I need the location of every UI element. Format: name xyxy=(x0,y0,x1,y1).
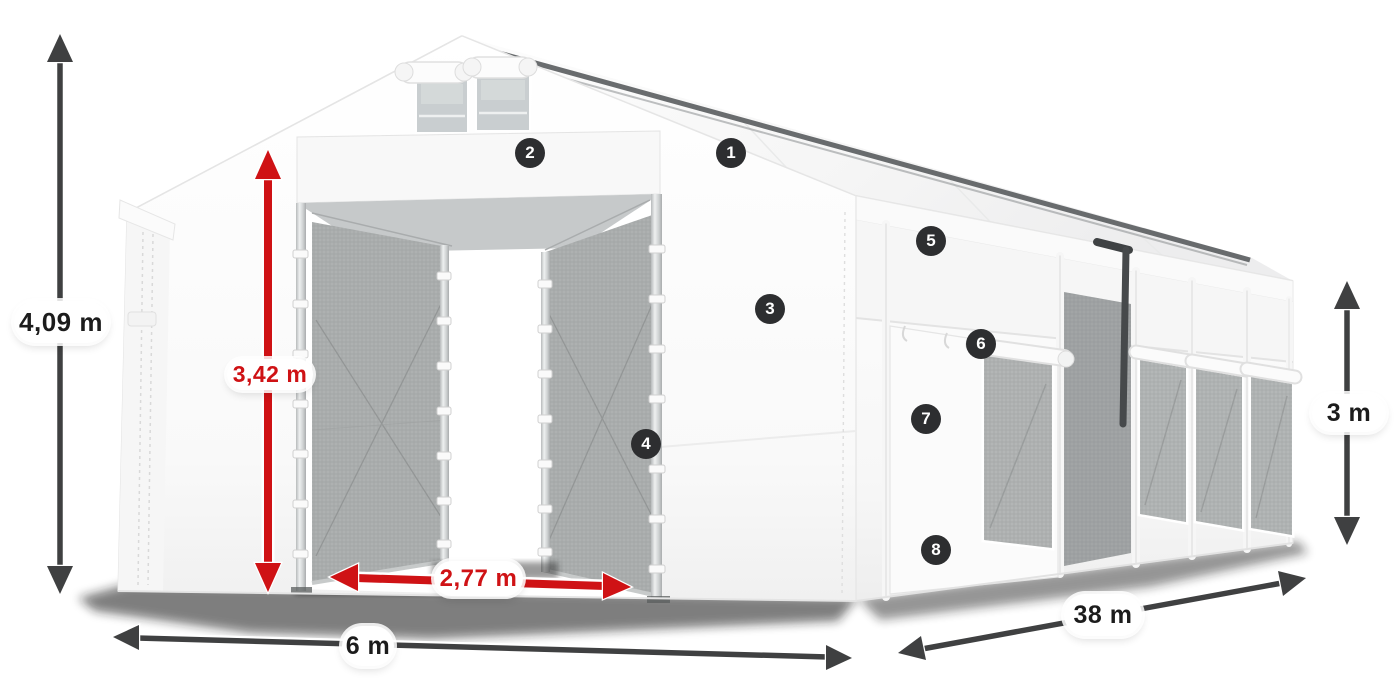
side-windows xyxy=(1136,352,1295,535)
dimension-label-length: 38 m xyxy=(1064,594,1142,636)
feature-badge-3: 3 xyxy=(755,294,785,324)
gable-vents xyxy=(395,57,537,132)
front-entrance-opening xyxy=(291,194,670,603)
dimension-label-width: 6 m xyxy=(342,626,394,666)
feature-badge-1: 1 xyxy=(716,138,746,168)
feature-badge-5: 5 xyxy=(916,226,946,256)
feature-badge-2: 2 xyxy=(515,138,545,168)
side-door xyxy=(890,326,1074,594)
entrance-right-door-leaf xyxy=(538,213,658,597)
dimension-label-entrance-height: 3,42 m xyxy=(227,359,313,390)
dimension-label-total-height: 4,09 m xyxy=(14,301,108,343)
dimension-label-side-height: 3 m xyxy=(1312,394,1386,432)
tent-dimension-diagram: 4,09 m 3,42 m 2,77 m 6 m 38 m 3 m 1 2 3 … xyxy=(0,0,1400,700)
tent-illustration xyxy=(0,0,1400,700)
dimension-label-entrance-width: 2,77 m xyxy=(434,561,523,596)
entrance-left-door-leaf xyxy=(312,222,451,583)
feature-badge-7: 7 xyxy=(911,404,941,434)
feature-badge-6: 6 xyxy=(966,329,996,359)
feature-badge-4: 4 xyxy=(631,429,661,459)
feature-badge-8: 8 xyxy=(921,535,951,565)
